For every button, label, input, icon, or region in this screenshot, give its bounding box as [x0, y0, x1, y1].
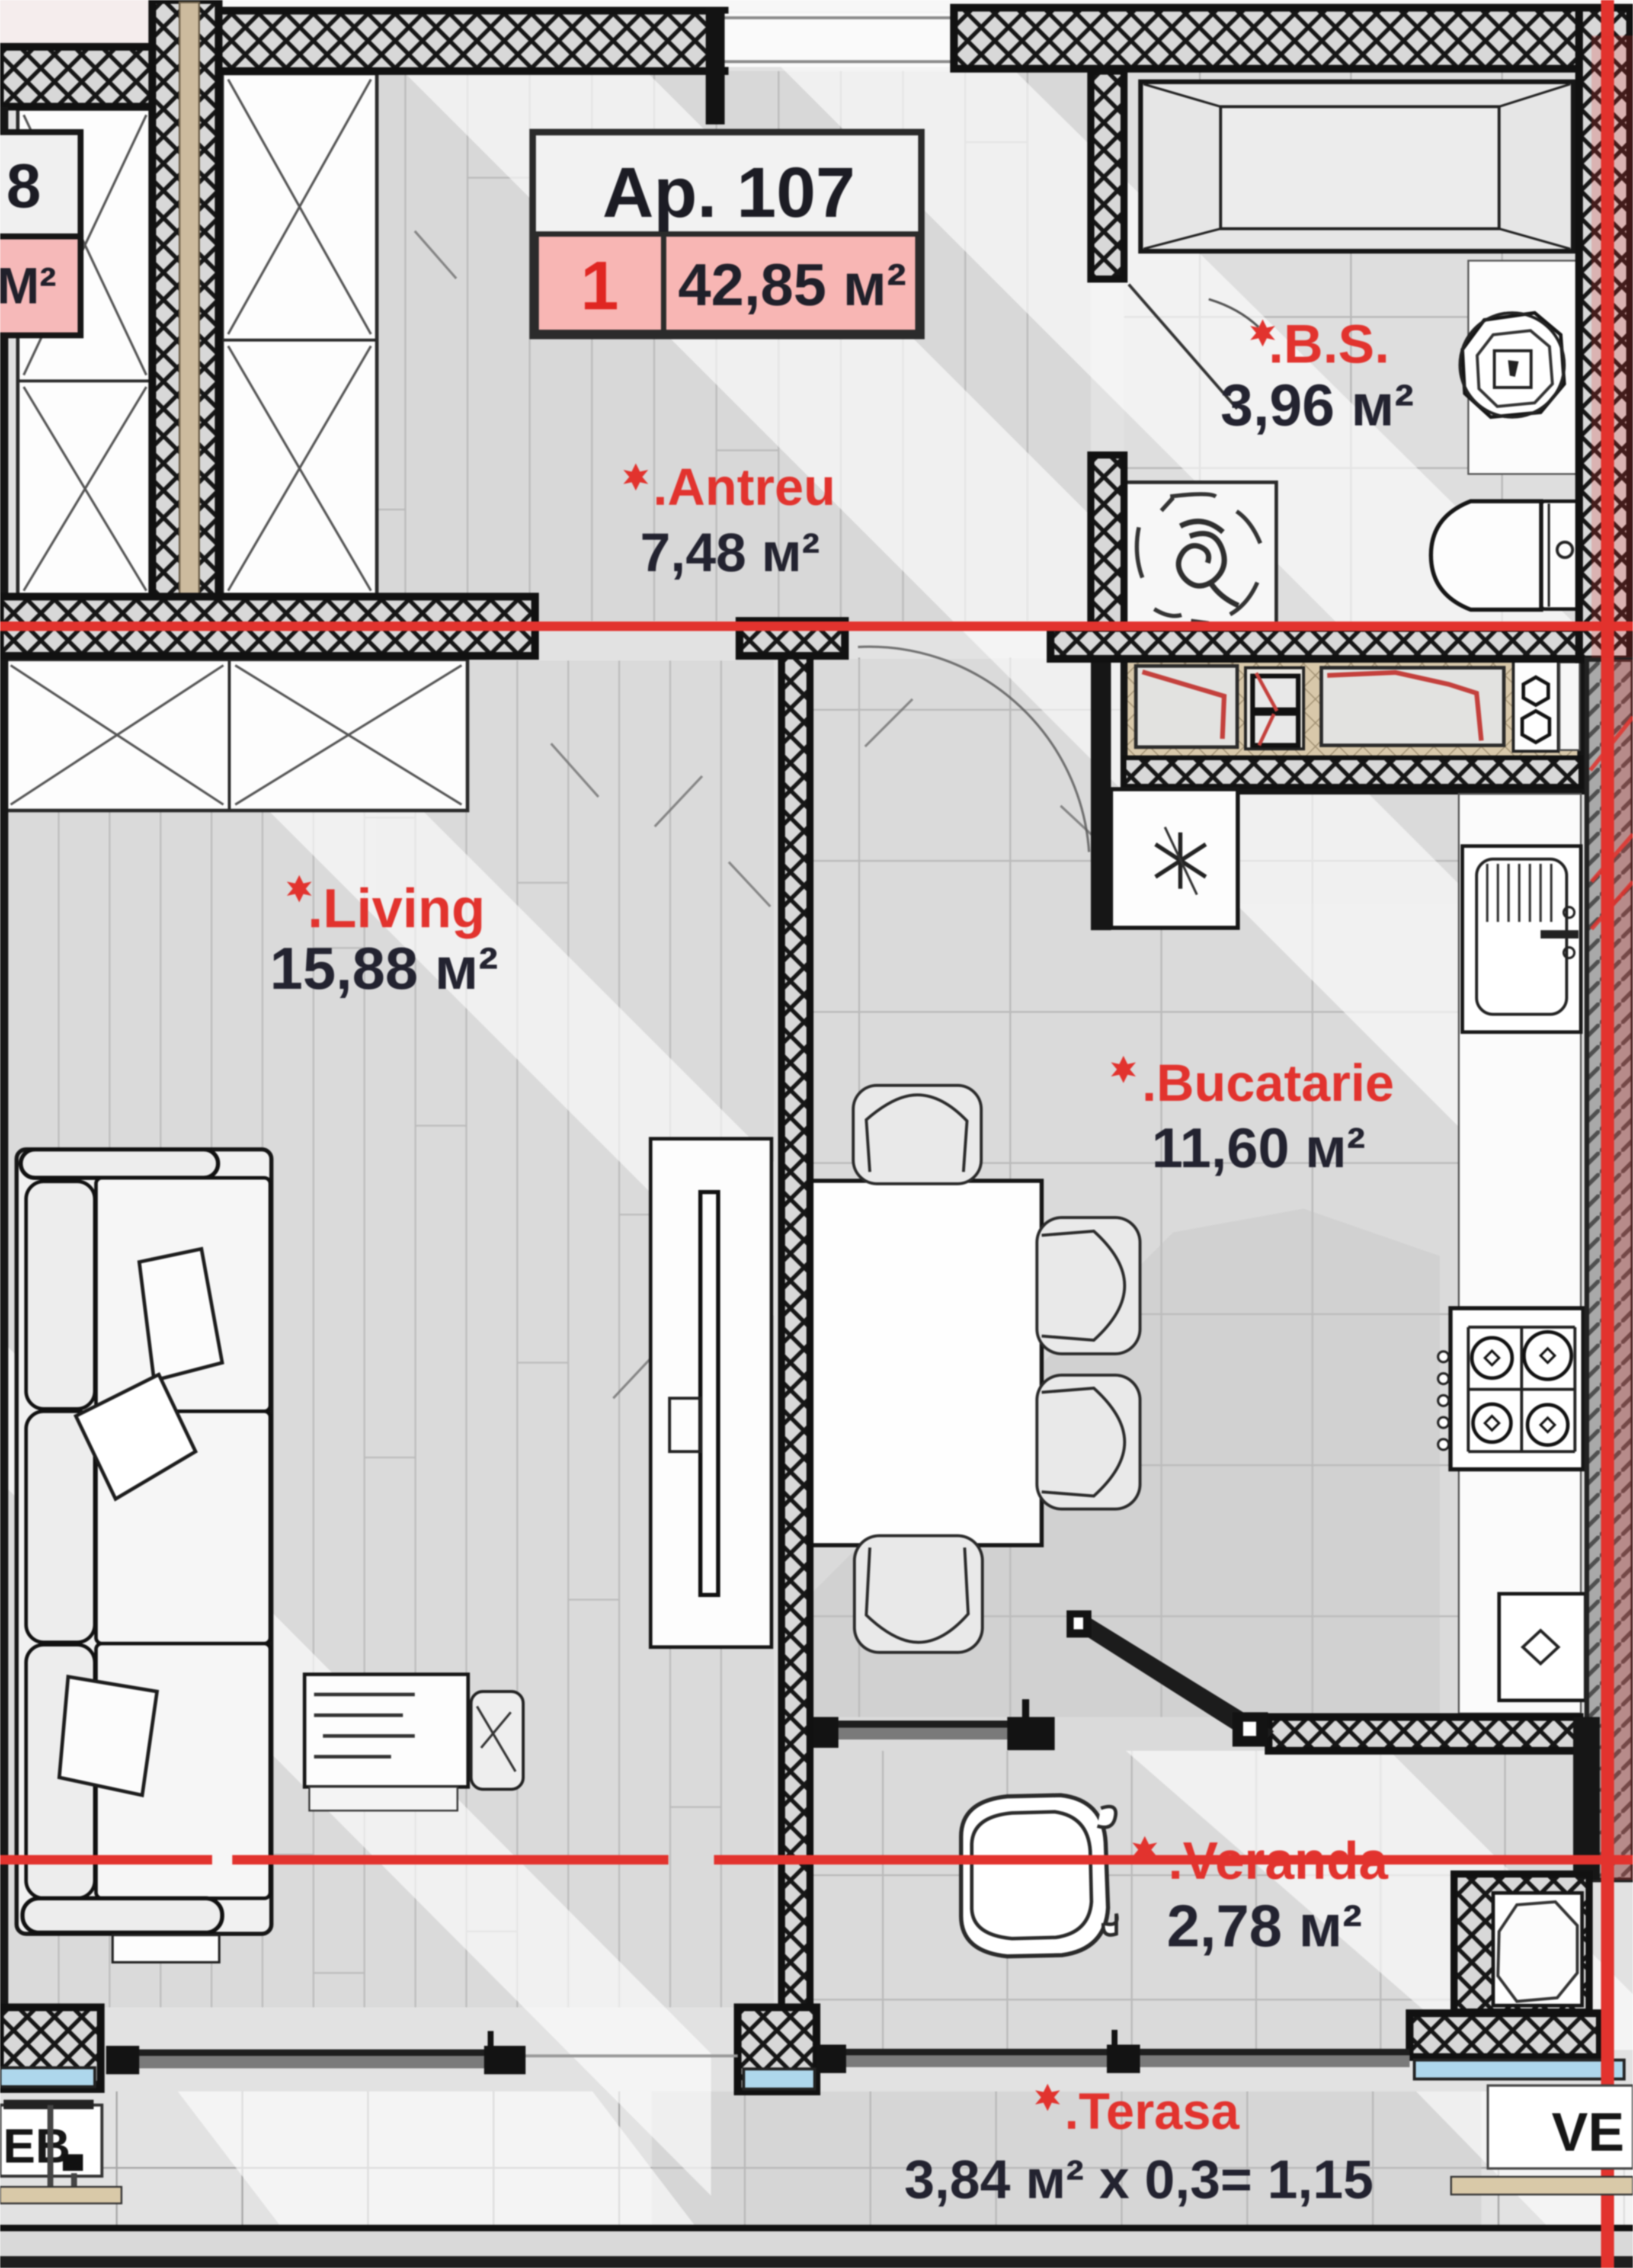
svg-text:.B.S.: .B.S.: [1269, 314, 1389, 374]
svg-text:.Antreu: .Antreu: [653, 457, 835, 516]
svg-text:.Living: .Living: [308, 877, 485, 939]
svg-text:8: 8: [7, 152, 41, 221]
svg-text:Ap. 107: Ap. 107: [603, 153, 856, 232]
svg-text:М²: М²: [0, 258, 56, 315]
svg-text:3,96 м²: 3,96 м²: [1221, 372, 1414, 438]
svg-text:15,88 м²: 15,88 м²: [270, 936, 498, 1002]
svg-text:VE: VE: [1552, 2102, 1625, 2163]
svg-text:3,84 м² x 0,3= 1,15: 3,84 м² x 0,3= 1,15: [904, 2150, 1373, 2210]
svg-text:11,60 м²: 11,60 м²: [1152, 1117, 1366, 1180]
svg-text:ЕВ: ЕВ: [3, 2119, 71, 2173]
svg-text:.Terasa: .Terasa: [1065, 2083, 1240, 2140]
svg-text:1: 1: [581, 247, 619, 324]
svg-text:.Veranda: .Veranda: [1168, 1831, 1389, 1890]
svg-text:2,78 м²: 2,78 м²: [1167, 1893, 1362, 1959]
svg-text:42,85 м²: 42,85 м²: [678, 252, 906, 318]
svg-text:7,48 м²: 7,48 м²: [640, 523, 819, 583]
svg-text:.Bucatarie: .Bucatarie: [1142, 1053, 1394, 1112]
